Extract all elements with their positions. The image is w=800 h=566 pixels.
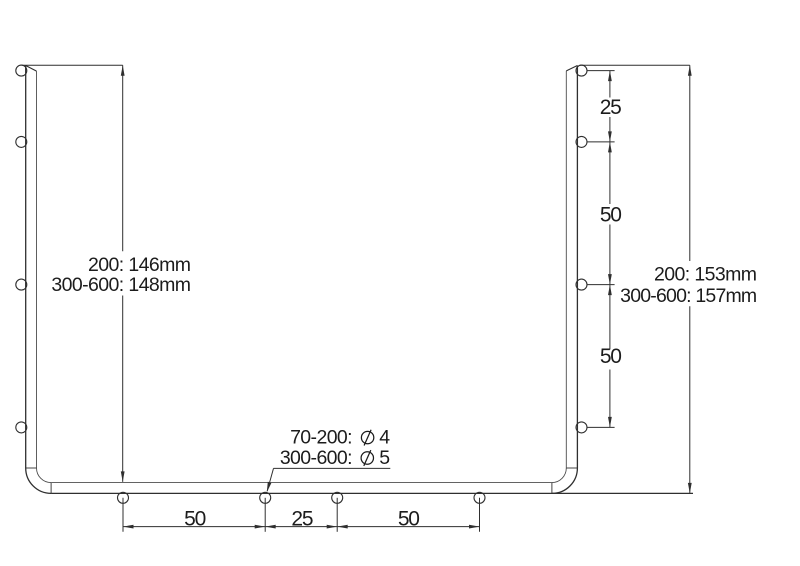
- svg-text:5: 5: [379, 447, 390, 469]
- svg-text:25: 25: [291, 507, 312, 530]
- svg-text:200: 146mm: 200: 146mm: [88, 254, 190, 276]
- svg-text:70-200:: 70-200:: [290, 427, 352, 449]
- svg-text:300-600:: 300-600:: [280, 447, 352, 469]
- svg-text:50: 50: [600, 203, 621, 226]
- svg-text:4: 4: [379, 427, 390, 449]
- svg-text:50: 50: [600, 345, 621, 368]
- svg-text:50: 50: [398, 507, 419, 530]
- svg-text:25: 25: [600, 96, 621, 119]
- svg-text:300-600: 157mm: 300-600: 157mm: [620, 285, 756, 307]
- svg-text:300-600: 148mm: 300-600: 148mm: [51, 274, 190, 296]
- svg-text:50: 50: [184, 507, 205, 530]
- svg-text:200: 153mm: 200: 153mm: [654, 263, 756, 285]
